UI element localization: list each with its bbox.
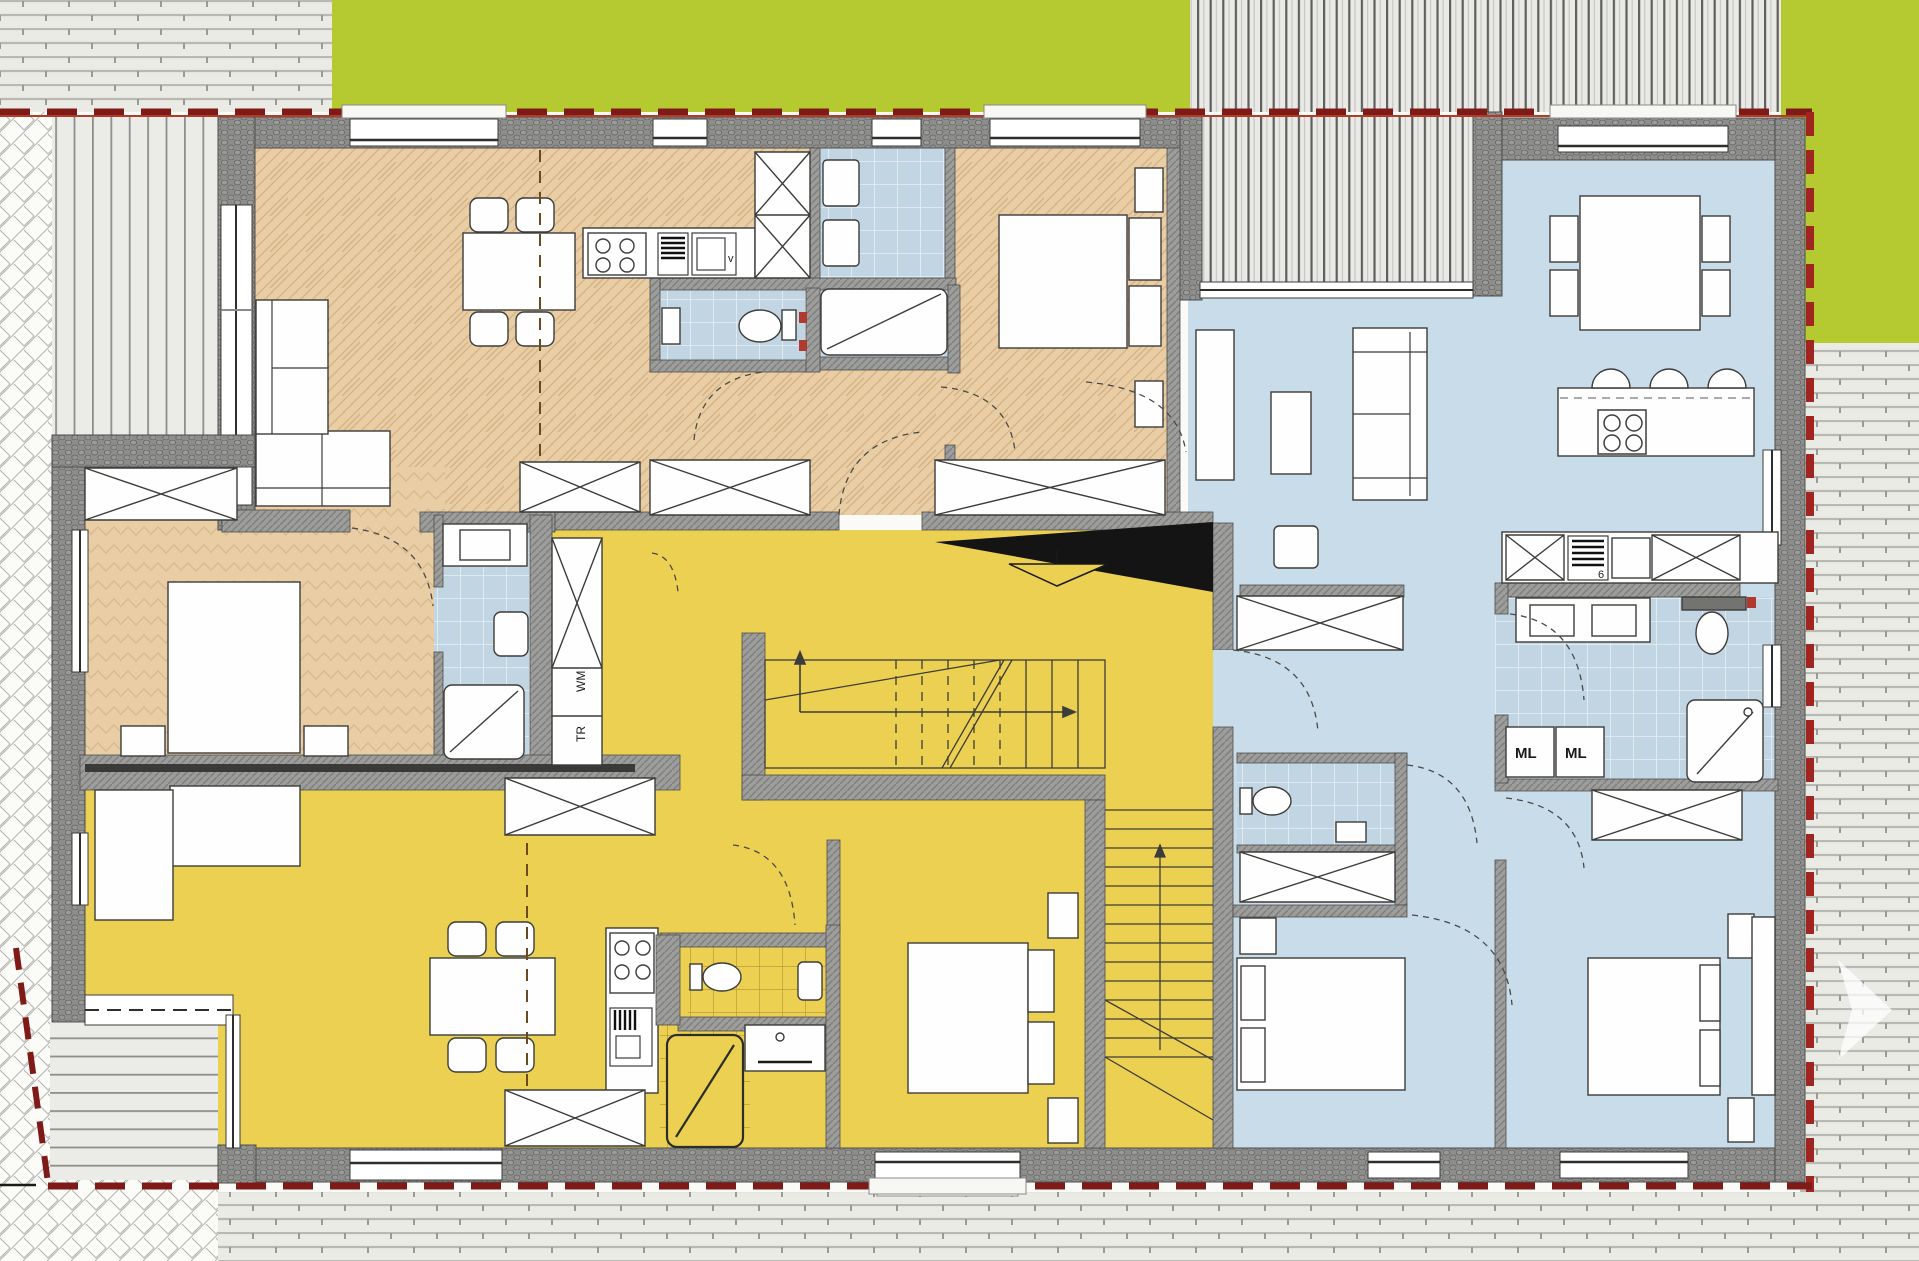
svg-text:WM: WM	[574, 671, 588, 692]
svg-text:6: 6	[1598, 569, 1604, 581]
svg-text:TR: TR	[574, 726, 588, 742]
svg-text:ML: ML	[1515, 745, 1537, 762]
svg-text:v: v	[728, 253, 734, 265]
svg-text:ML: ML	[1565, 745, 1587, 762]
